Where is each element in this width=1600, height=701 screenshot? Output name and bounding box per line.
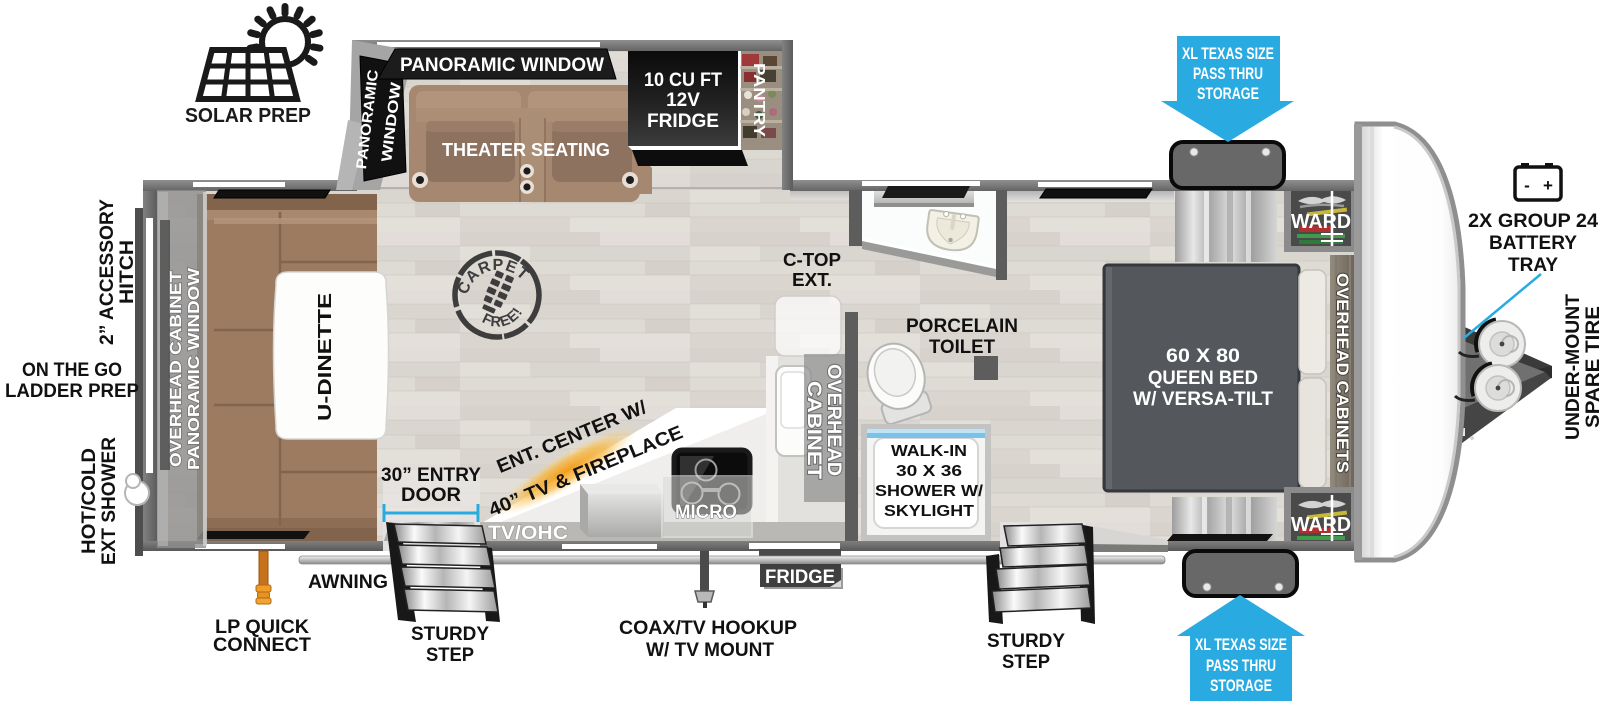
svg-text:30 X 36: 30 X 36 [896,463,962,480]
svg-text:XL TEXAS SIZE: XL TEXAS SIZE [1182,44,1274,63]
svg-text:PANORAMIC WINDOW: PANORAMIC WINDOW [186,268,203,470]
svg-text:STURDY: STURDY [411,624,489,645]
svg-text:12V: 12V [666,90,700,111]
svg-text:OVERHEAD CABINETS: OVERHEAD CABINETS [1333,273,1352,473]
svg-text:TOILET: TOILET [929,337,995,358]
svg-text:STURDY: STURDY [987,631,1065,652]
svg-text:EXT.: EXT. [792,270,832,290]
svg-text:SHOWER W/: SHOWER W/ [875,483,984,500]
svg-text:ON THE GO: ON THE GO [22,360,122,381]
svg-text:STEP: STEP [1002,652,1050,673]
svg-text:THEATER SEATING: THEATER SEATING [442,140,610,160]
svg-text:BATTERY: BATTERY [1489,233,1577,254]
svg-text:W/ VERSA-TILT: W/ VERSA-TILT [1133,389,1273,410]
svg-text:SPARE TIRE: SPARE TIRE [1582,306,1600,428]
svg-text:PASS THRU: PASS THRU [1206,656,1276,675]
svg-text:OVERHEAD: OVERHEAD [823,364,844,476]
svg-text:W/ TV MOUNT: W/ TV MOUNT [646,640,774,661]
svg-text:LADDER PREP: LADDER PREP [5,381,139,402]
svg-text:FRIDGE: FRIDGE [647,111,719,132]
svg-text:U-DINETTE: U-DINETTE [315,293,335,421]
svg-text:+: + [1543,176,1553,195]
svg-text:STORAGE: STORAGE [1197,84,1259,103]
svg-text:10 CU FT: 10 CU FT [644,70,722,91]
svg-text:XL TEXAS SIZE: XL TEXAS SIZE [1195,635,1287,654]
svg-text:QUEEN BED: QUEEN BED [1148,368,1258,389]
svg-text:PANTRY: PANTRY [750,63,767,137]
svg-text:TV/OHC: TV/OHC [488,523,568,544]
svg-text:C-TOP: C-TOP [783,250,841,270]
svg-text:STORAGE: STORAGE [1210,676,1272,695]
svg-text:30” ENTRY: 30” ENTRY [381,465,481,486]
svg-text:STEP: STEP [426,645,474,666]
svg-text:WARD: WARD [1291,514,1351,536]
svg-text:CONNECT: CONNECT [213,635,311,656]
svg-text:AWNING: AWNING [308,572,388,593]
svg-text:2X GROUP 24: 2X GROUP 24 [1468,211,1598,232]
svg-text:HOT/COLD: HOT/COLD [79,448,100,554]
svg-text:HITCH: HITCH [117,240,138,304]
svg-text:SOLAR PREP: SOLAR PREP [185,105,311,127]
svg-text:-: - [1524,176,1530,195]
svg-text:PORCELAIN: PORCELAIN [906,316,1018,337]
svg-text:OVERHEAD CABINET: OVERHEAD CABINET [168,270,185,467]
svg-text:CABINET: CABINET [803,381,824,479]
svg-text:60 X 80: 60 X 80 [1166,346,1240,367]
svg-text:2” ACCESSORY: 2” ACCESSORY [97,199,118,345]
svg-text:SKYLIGHT: SKYLIGHT [884,503,974,520]
svg-text:EXT SHOWER: EXT SHOWER [99,437,120,565]
svg-text:PASS THRU: PASS THRU [1193,64,1263,83]
svg-text:UNDER-MOUNT: UNDER-MOUNT [1562,294,1584,440]
svg-text:FRIDGE: FRIDGE [765,567,835,588]
svg-text:MICRO: MICRO [675,502,737,523]
svg-text:COAX/TV HOOKUP: COAX/TV HOOKUP [619,618,797,639]
svg-text:TRAY: TRAY [1508,255,1558,276]
svg-text:PANORAMIC WINDOW: PANORAMIC WINDOW [400,55,604,76]
svg-text:WARD: WARD [1291,211,1351,233]
svg-text:WALK-IN: WALK-IN [891,443,967,460]
svg-text:DOOR: DOOR [401,485,461,506]
